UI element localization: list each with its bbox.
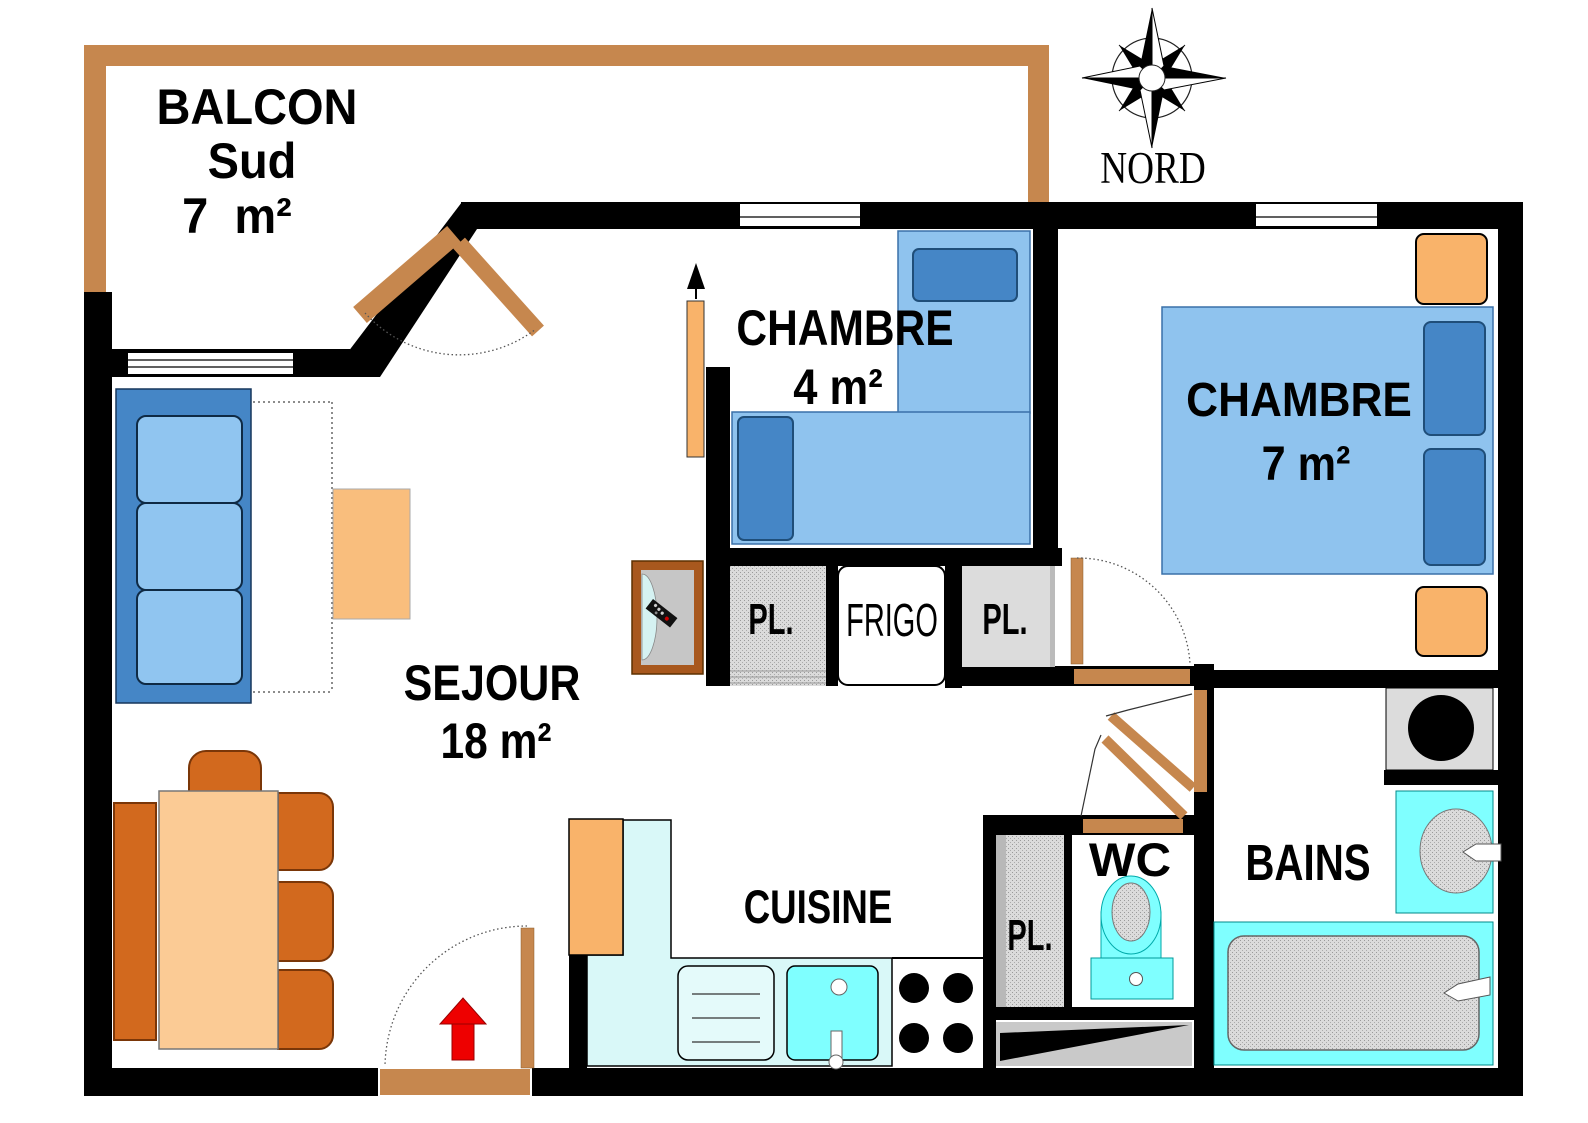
svg-text:WC: WC [1089, 834, 1171, 887]
svg-text:CUISINE: CUISINE [744, 881, 893, 933]
svg-text:4 m²: 4 m² [793, 359, 882, 414]
svg-text:PL.: PL. [1007, 910, 1052, 960]
svg-text:BALCON: BALCON [156, 80, 357, 136]
svg-text:18 m²: 18 m² [441, 713, 552, 769]
svg-text:PL.: PL. [982, 594, 1027, 644]
svg-text:PL.: PL. [748, 594, 793, 644]
svg-text:Sud: Sud [208, 134, 297, 190]
svg-text:SEJOUR: SEJOUR [404, 655, 581, 711]
svg-text:CHAMBRE: CHAMBRE [1186, 372, 1412, 426]
svg-text:NORD: NORD [1100, 143, 1206, 194]
svg-text:7 m²: 7 m² [182, 189, 292, 245]
svg-text:FRIGO: FRIGO [846, 595, 938, 646]
svg-text:BAINS: BAINS [1245, 833, 1370, 891]
svg-text:7 m²: 7 m² [1262, 437, 1351, 491]
svg-text:CHAMBRE: CHAMBRE [736, 300, 953, 356]
